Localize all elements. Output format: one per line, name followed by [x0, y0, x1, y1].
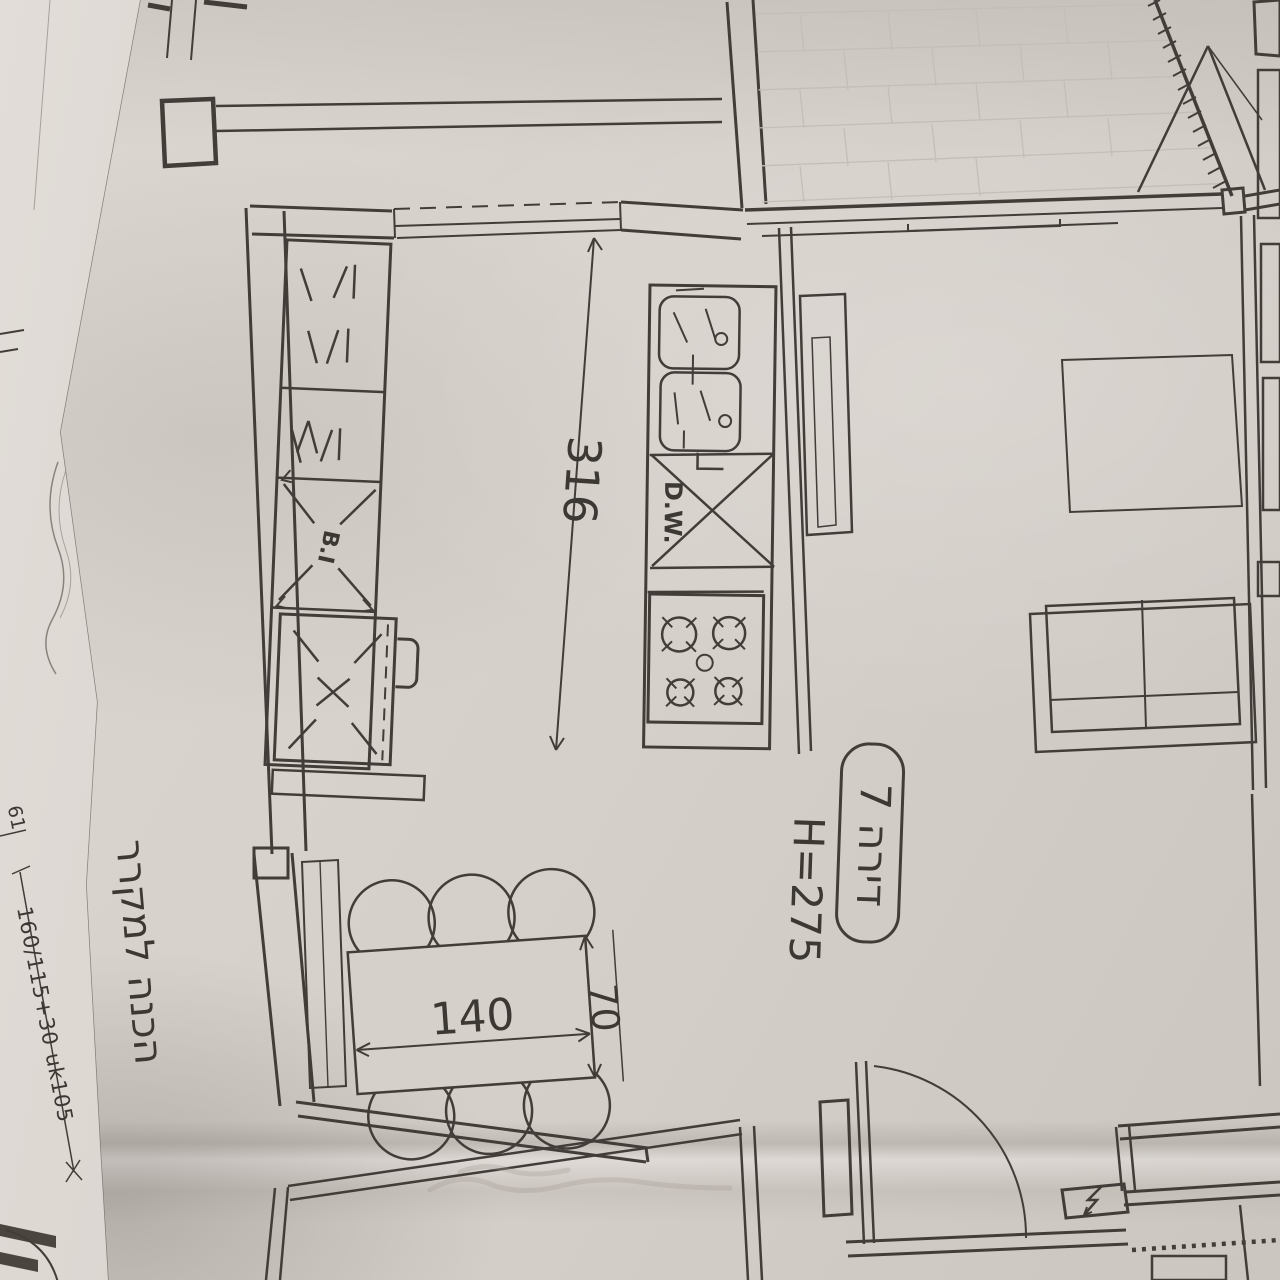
height-note: H=275	[779, 816, 833, 965]
fridge-prep-note: הכנה למקרר	[106, 838, 171, 1067]
entrance-door	[820, 1061, 1128, 1256]
dining-set: 140 70	[343, 864, 636, 1162]
electrical-panel	[1062, 1184, 1128, 1218]
dining-left-wall	[254, 848, 346, 1106]
main-plan-sheet: B.I	[0, 0, 1280, 1280]
fridge	[274, 614, 419, 766]
margin-number-group: 61	[0, 803, 29, 836]
table-length-label: 140	[429, 989, 516, 1046]
bottom-right-walls	[1116, 1114, 1280, 1280]
cooktop	[646, 590, 764, 724]
paper-crumple-lines	[46, 462, 71, 674]
left-cabinet-run: B.I	[264, 240, 447, 800]
underlay-partial-lines	[0, 0, 50, 352]
cabinet-hatch-marks	[291, 262, 355, 464]
lightning-bolt-icon	[1084, 1186, 1102, 1215]
kitchen-right-wall	[779, 227, 852, 754]
right-counter-run: D.W.	[644, 285, 778, 749]
window-spec-label: 160/115+30 uk105	[12, 904, 77, 1124]
unit-badge-label: דירה 7	[847, 782, 900, 907]
top-right-corner-rect	[1254, 0, 1280, 56]
dishwasher-label: D.W.	[658, 481, 687, 544]
kitchen-dimension-316: 316	[550, 238, 612, 750]
fridge-handle	[395, 639, 418, 688]
counter-strip	[272, 770, 425, 800]
floorplan-svg: B.I	[0, 0, 1280, 1280]
margin-number: 61	[3, 803, 30, 831]
floorplan-photo: 61 160/115+30 uk105	[0, 0, 1280, 1280]
kitchen-sink	[658, 288, 742, 451]
table-depth-label: 70	[581, 982, 628, 1033]
living-right-wall	[1241, 70, 1280, 1086]
kitchen-top-wall	[250, 202, 743, 239]
balcony-tiles	[750, 2, 1260, 202]
top-left-column-wall	[148, 0, 722, 166]
kitchen-dim-label: 316	[552, 434, 612, 525]
balcony	[727, 0, 1280, 236]
hatched-wall-band	[1148, 0, 1232, 196]
dining-bottom-wall	[296, 1102, 648, 1162]
living-rug	[1062, 355, 1242, 512]
door-swing-arc	[874, 1066, 1026, 1238]
sliding-door-track	[745, 188, 1280, 236]
built-in-label: B.I	[312, 528, 344, 566]
window-dimension-group: 160/115+30 uk105	[12, 866, 82, 1182]
sofa	[1030, 598, 1256, 752]
unit-badge: דירה 7	[836, 743, 905, 943]
